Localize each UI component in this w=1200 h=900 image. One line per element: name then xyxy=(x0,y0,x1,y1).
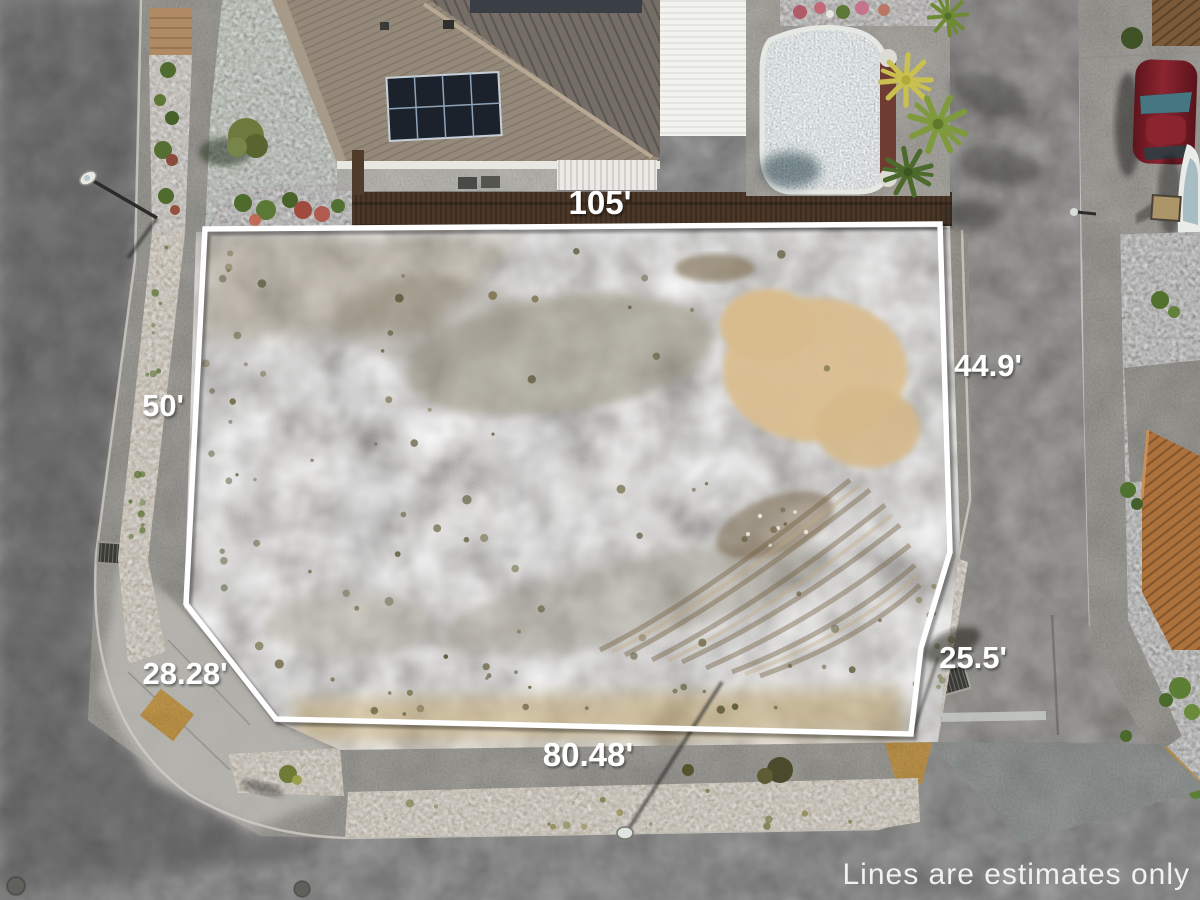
weed xyxy=(784,522,788,526)
weed xyxy=(780,508,785,513)
weed xyxy=(698,639,706,647)
label-diagonal: 28.28' xyxy=(143,656,228,691)
gravel-strip xyxy=(149,55,192,233)
weed xyxy=(788,664,792,668)
fence-top-right-planks xyxy=(1152,0,1200,46)
weed xyxy=(936,685,941,690)
weed xyxy=(139,499,146,506)
label-right: 44.9' xyxy=(954,348,1022,383)
streetlight-arm-d xyxy=(1076,212,1096,214)
weed xyxy=(226,477,233,484)
weed xyxy=(152,331,155,334)
weed xyxy=(774,706,778,710)
weed xyxy=(388,691,392,695)
weed xyxy=(401,512,407,518)
manhole xyxy=(294,881,310,897)
weed xyxy=(227,250,233,256)
weed xyxy=(483,663,490,670)
disclaimer-text: Lines are estimates only xyxy=(843,858,1191,891)
weed xyxy=(165,246,169,250)
paver-walkway xyxy=(150,8,192,56)
backyard-walk xyxy=(337,169,557,191)
roof-solar-dark-band xyxy=(470,0,642,13)
weed xyxy=(230,398,236,404)
weed xyxy=(388,330,394,336)
weed xyxy=(636,533,642,539)
weed xyxy=(916,597,922,603)
weed xyxy=(705,789,709,793)
weed xyxy=(528,375,536,383)
weed xyxy=(308,570,312,574)
sandy-patch xyxy=(720,289,816,361)
weed xyxy=(462,495,471,504)
fence-left-return xyxy=(352,150,364,195)
weed xyxy=(931,584,936,589)
weed xyxy=(275,659,284,668)
label-bottom-right: 25.5' xyxy=(939,640,1007,675)
weed xyxy=(717,706,725,714)
weed xyxy=(763,823,770,830)
weed xyxy=(532,295,539,302)
weed xyxy=(208,450,215,457)
mailbox-kiosk xyxy=(1151,195,1181,221)
weed xyxy=(150,370,157,377)
ac-unit xyxy=(481,176,500,188)
weed xyxy=(253,478,256,481)
weed xyxy=(151,289,159,297)
debris-pile xyxy=(675,254,755,282)
parkstrip-bush xyxy=(682,764,694,776)
weed xyxy=(406,799,414,807)
weed xyxy=(220,549,225,554)
weed xyxy=(428,408,432,412)
weed xyxy=(630,652,638,660)
weed xyxy=(395,294,404,303)
dirt-gray-patch xyxy=(265,593,435,657)
weed xyxy=(796,591,801,596)
weed xyxy=(705,482,708,485)
weed xyxy=(692,488,696,492)
weed xyxy=(628,306,632,310)
weed xyxy=(343,590,350,597)
weed xyxy=(649,822,653,826)
weed xyxy=(639,634,646,641)
weed xyxy=(139,471,145,477)
weed xyxy=(641,275,648,282)
weed xyxy=(770,526,777,533)
weed xyxy=(831,625,839,633)
weed xyxy=(653,353,660,360)
weed xyxy=(581,824,587,830)
weed xyxy=(528,686,531,689)
weed xyxy=(156,368,161,373)
weed xyxy=(244,362,248,366)
weed xyxy=(253,540,260,547)
weed xyxy=(407,690,413,696)
weed xyxy=(741,536,747,542)
label-top: 105' xyxy=(569,184,632,221)
palm-tree xyxy=(881,55,931,105)
weed xyxy=(228,420,232,424)
manhole xyxy=(7,877,25,895)
weed xyxy=(511,565,519,573)
streetlight-head-b xyxy=(617,827,633,839)
weed xyxy=(128,499,132,503)
weed xyxy=(573,248,580,255)
weed xyxy=(330,677,334,681)
weed xyxy=(547,823,550,826)
weed xyxy=(138,510,145,517)
weed xyxy=(485,677,488,680)
car-roof xyxy=(1146,116,1186,144)
weed xyxy=(563,821,571,829)
label-bottom: 80.48' xyxy=(543,736,633,773)
weed xyxy=(145,373,149,377)
fence-rail xyxy=(352,202,952,205)
label-left: 50' xyxy=(142,388,184,423)
weed xyxy=(777,250,786,259)
lawn-tree xyxy=(244,134,268,158)
weed xyxy=(401,274,405,278)
weed xyxy=(849,666,856,673)
weed xyxy=(585,706,589,710)
weed xyxy=(385,396,392,403)
weed xyxy=(417,705,425,713)
weed xyxy=(381,349,385,353)
weed xyxy=(225,264,233,272)
weed xyxy=(680,684,687,691)
weed xyxy=(129,534,134,539)
weed xyxy=(878,618,882,622)
weed xyxy=(139,527,145,533)
weed xyxy=(385,597,394,606)
weed xyxy=(258,279,267,288)
fence-planks xyxy=(352,192,952,226)
aerial-photo: 105' 44.9' 50' 28.28' 80.48' 25.5' Lines… xyxy=(0,0,1200,900)
streetlight-head-d xyxy=(1070,208,1078,216)
weed xyxy=(374,442,377,445)
weed xyxy=(234,332,242,340)
roof-vent xyxy=(380,22,389,30)
weed xyxy=(151,323,155,327)
weed xyxy=(220,557,228,565)
weed xyxy=(822,665,827,670)
weed xyxy=(310,459,313,462)
weed xyxy=(848,820,852,824)
weed xyxy=(221,584,228,591)
weed xyxy=(517,630,521,634)
frontage-bush xyxy=(1121,27,1143,49)
weed xyxy=(514,670,518,674)
streetlight-lens xyxy=(84,175,90,181)
weed xyxy=(410,439,418,447)
roof-vent xyxy=(443,20,454,29)
weed xyxy=(488,291,497,300)
weed xyxy=(703,690,706,693)
weed xyxy=(464,537,470,543)
weed xyxy=(732,703,739,710)
solar-panels xyxy=(386,72,501,141)
weed xyxy=(765,816,773,824)
weed xyxy=(538,605,545,612)
pool-shadow xyxy=(760,152,820,188)
weed xyxy=(616,809,623,816)
weed xyxy=(600,797,606,803)
weed xyxy=(480,534,488,542)
weed xyxy=(209,388,215,394)
corner-shrub xyxy=(292,775,302,785)
weed xyxy=(690,308,694,312)
weed xyxy=(141,523,145,527)
weed xyxy=(235,473,238,476)
stop-bar xyxy=(938,711,1046,722)
weed xyxy=(522,704,529,711)
weed xyxy=(371,707,379,715)
weed xyxy=(260,371,266,377)
weed xyxy=(550,824,556,830)
weed xyxy=(433,524,441,532)
weed xyxy=(434,804,438,808)
sandy-patch xyxy=(816,388,920,468)
weed xyxy=(673,689,678,694)
weed xyxy=(802,810,808,816)
ac-unit xyxy=(458,177,477,189)
mulch-bed-front xyxy=(208,185,352,230)
weed xyxy=(444,654,449,659)
patio-cover-ribs xyxy=(660,0,746,136)
palm-shadow xyxy=(942,200,1002,230)
weed xyxy=(159,302,162,305)
weed xyxy=(395,551,401,557)
lawn-tree xyxy=(227,137,247,157)
weed xyxy=(219,275,227,283)
weed xyxy=(402,712,406,716)
weed xyxy=(824,365,830,371)
weed xyxy=(255,642,264,651)
weed xyxy=(354,606,359,611)
weed xyxy=(491,433,494,436)
weed xyxy=(617,485,626,494)
parkstrip-bush xyxy=(757,768,773,784)
